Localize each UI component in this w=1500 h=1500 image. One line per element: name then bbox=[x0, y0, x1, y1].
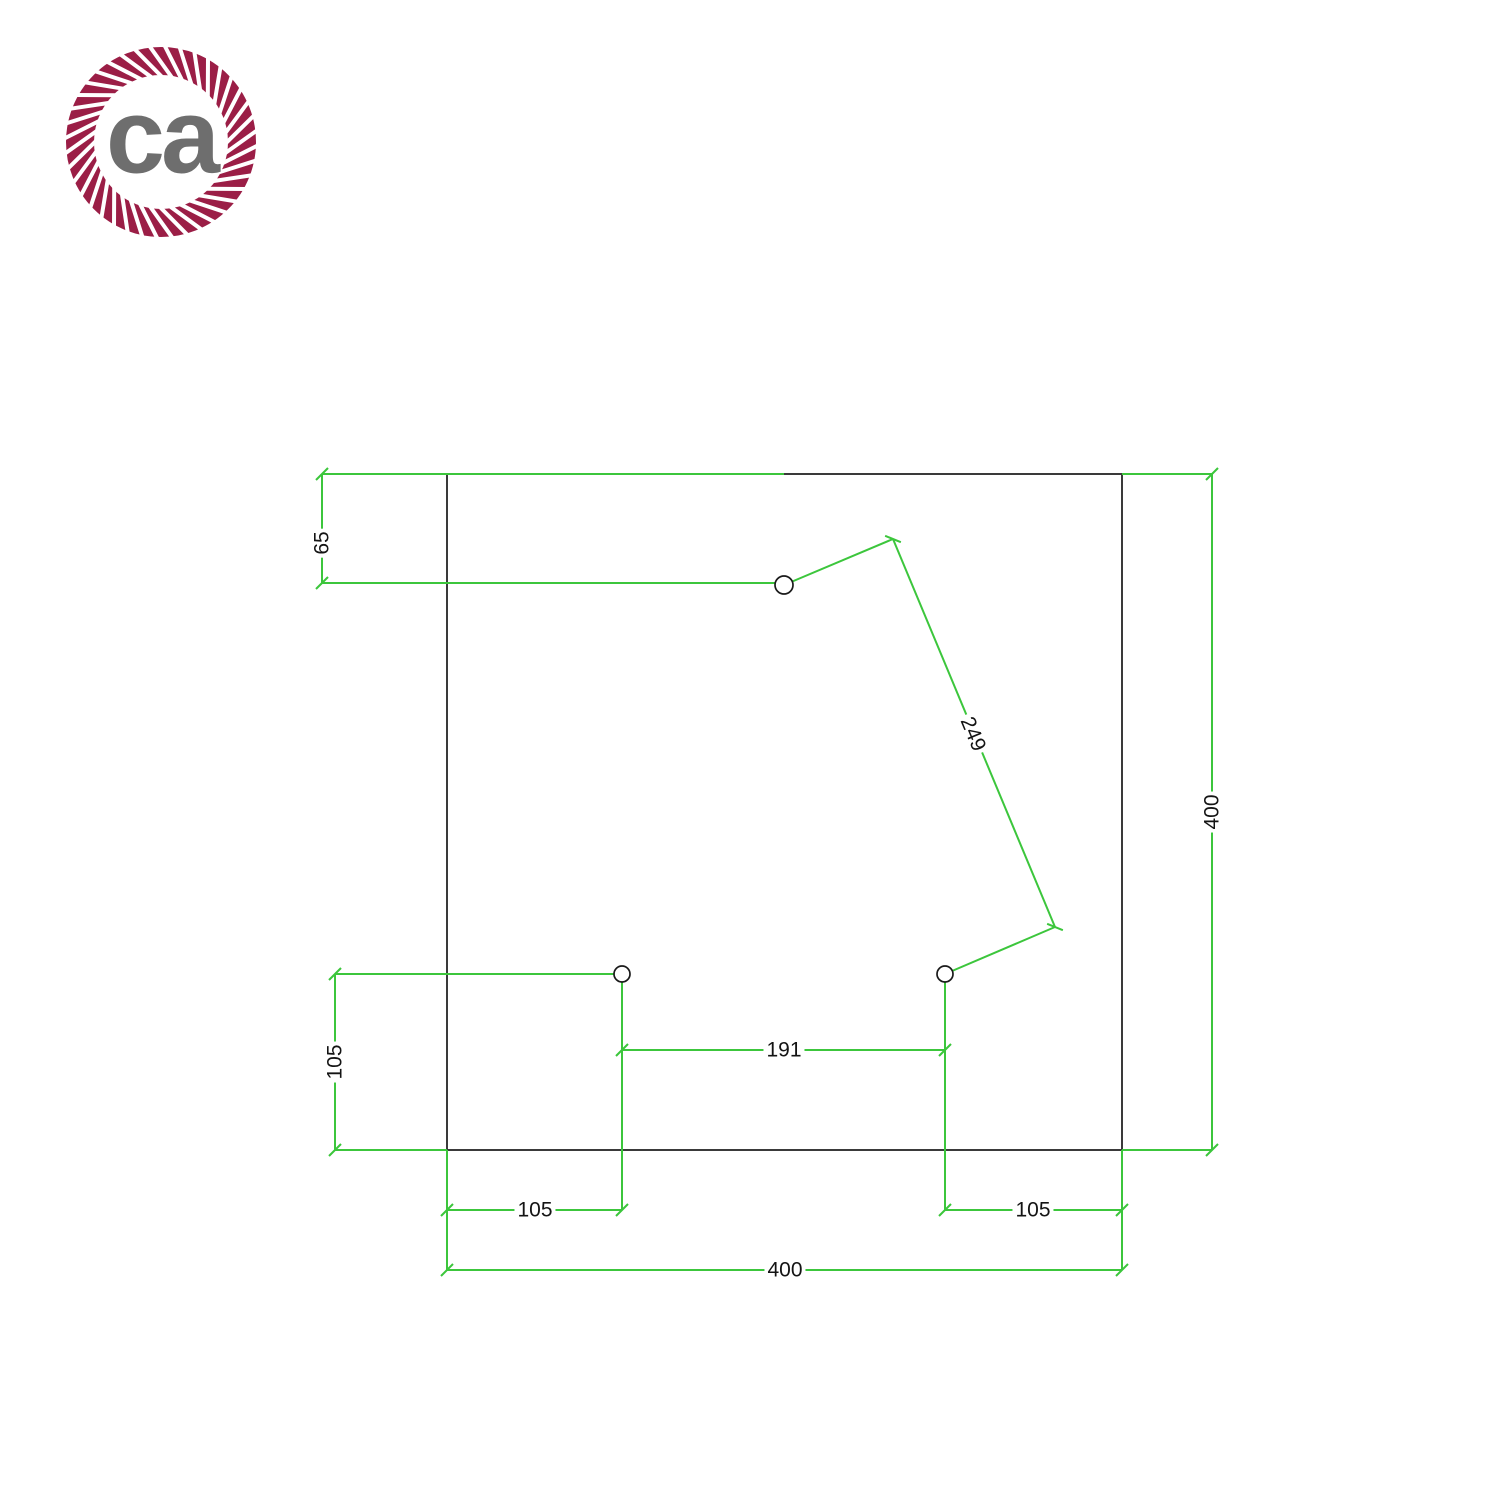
hole-bottom-right bbox=[937, 966, 953, 982]
dim-label-bottom-hole-spacing: 191 bbox=[763, 1039, 804, 1062]
hole-bottom-left bbox=[614, 966, 630, 982]
dim-label-bottom-left-hole-offset: 105 bbox=[514, 1199, 555, 1222]
technical-drawing bbox=[0, 0, 1500, 1500]
mounting-holes bbox=[614, 576, 953, 982]
dim-label-plate-width: 400 bbox=[764, 1259, 805, 1282]
page: ca bbox=[0, 0, 1500, 1500]
dim-label-bottom-right-hole-offset: 105 bbox=[1012, 1199, 1053, 1222]
dim-label-bottom-hole-height: 105 bbox=[324, 1041, 347, 1082]
dim-label-plate-height: 400 bbox=[1201, 791, 1224, 832]
hole-top bbox=[775, 576, 793, 594]
dimension-ticks bbox=[316, 468, 1218, 1276]
dim-label-top-hole-offset: 65 bbox=[311, 528, 334, 557]
